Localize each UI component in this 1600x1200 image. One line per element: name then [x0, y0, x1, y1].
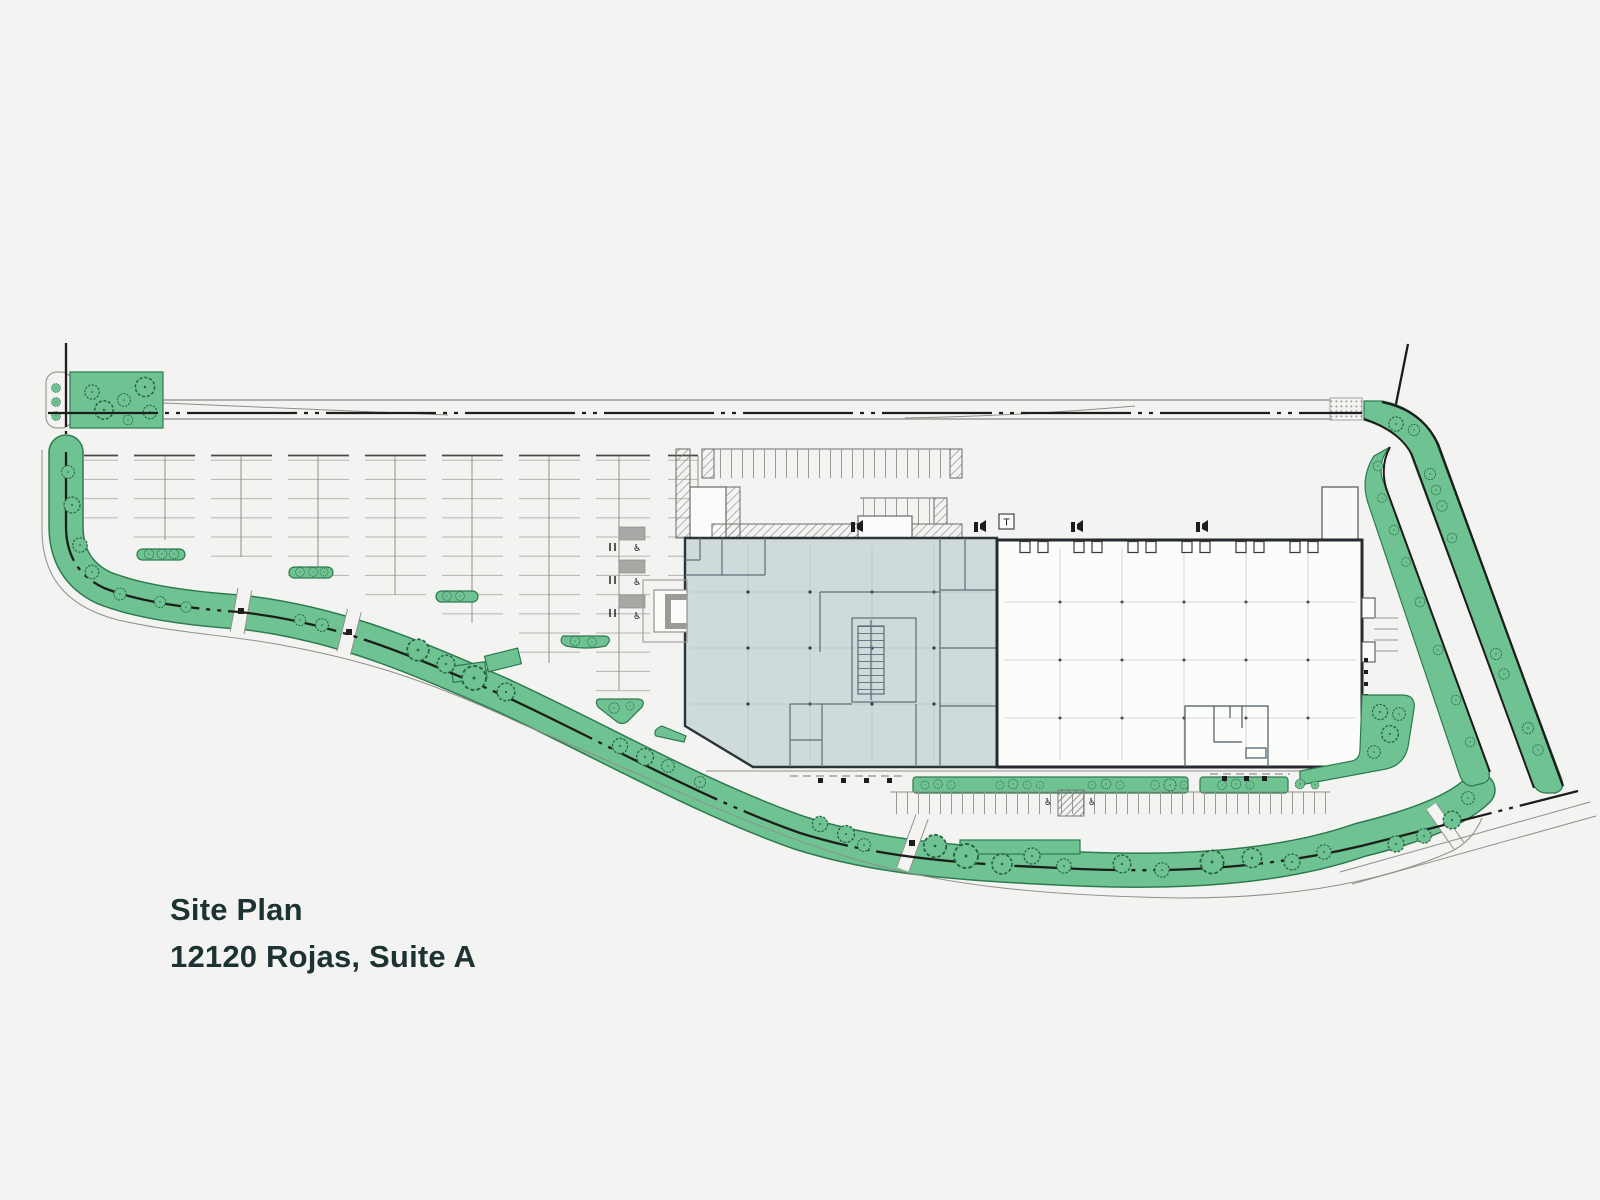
south-stall-ticks [890, 792, 1330, 814]
tree-icon [85, 385, 99, 399]
parking-column [288, 456, 349, 579]
east-building [997, 540, 1398, 767]
north-road [46, 372, 1362, 428]
parking-column [84, 456, 118, 529]
tree-icon [135, 377, 154, 396]
accessible-crossing [1058, 790, 1084, 816]
tree-icon [118, 394, 131, 407]
entry-vestibule [858, 516, 912, 538]
tree-icon [52, 384, 61, 393]
hatched-island [702, 449, 714, 478]
site-plan-drawing: ♿ ♿ ♿ [0, 0, 1600, 1200]
boundary-northeast-stub [1394, 344, 1408, 414]
east-side-features [1362, 598, 1398, 698]
stall-ticks-row [714, 449, 950, 478]
canopy-hatch [912, 524, 962, 538]
plan-address: 12120 Rojas, Suite A [170, 933, 476, 980]
parking-column [134, 456, 195, 546]
accessible-icon: ♿ [633, 577, 642, 588]
accessible-icon: ♿ [633, 543, 642, 554]
east-building-footprint [997, 540, 1362, 767]
canopy-hatch [712, 524, 858, 538]
plan-title: Site Plan [170, 886, 476, 933]
crosswalk [1330, 398, 1362, 420]
dock-and-canopy-zone: T [676, 449, 1358, 540]
south-porch [790, 776, 905, 783]
transformer-label: T [1003, 518, 1011, 529]
trailer-stall [1322, 487, 1358, 540]
parking-column [365, 456, 426, 601]
tree-icon [95, 401, 113, 419]
hatched-walkway [676, 449, 690, 538]
accessible-icon: ♿ [1088, 797, 1097, 808]
parking-column [596, 456, 650, 696]
title-block: Site Plan 12120 Rojas, Suite A [170, 886, 476, 980]
accessible-icon: ♿ [1044, 797, 1053, 808]
hatched-island [934, 498, 947, 524]
accessible-icon: ♿ [633, 611, 642, 622]
suite-a-footprint [685, 538, 997, 767]
tree-icon [52, 398, 61, 407]
hatched-island [950, 449, 962, 478]
site-plan-canvas: ♿ ♿ ♿ [0, 0, 1600, 1200]
suite-a-building [643, 538, 997, 783]
tree-icon [123, 415, 133, 425]
parking-column [211, 456, 272, 563]
